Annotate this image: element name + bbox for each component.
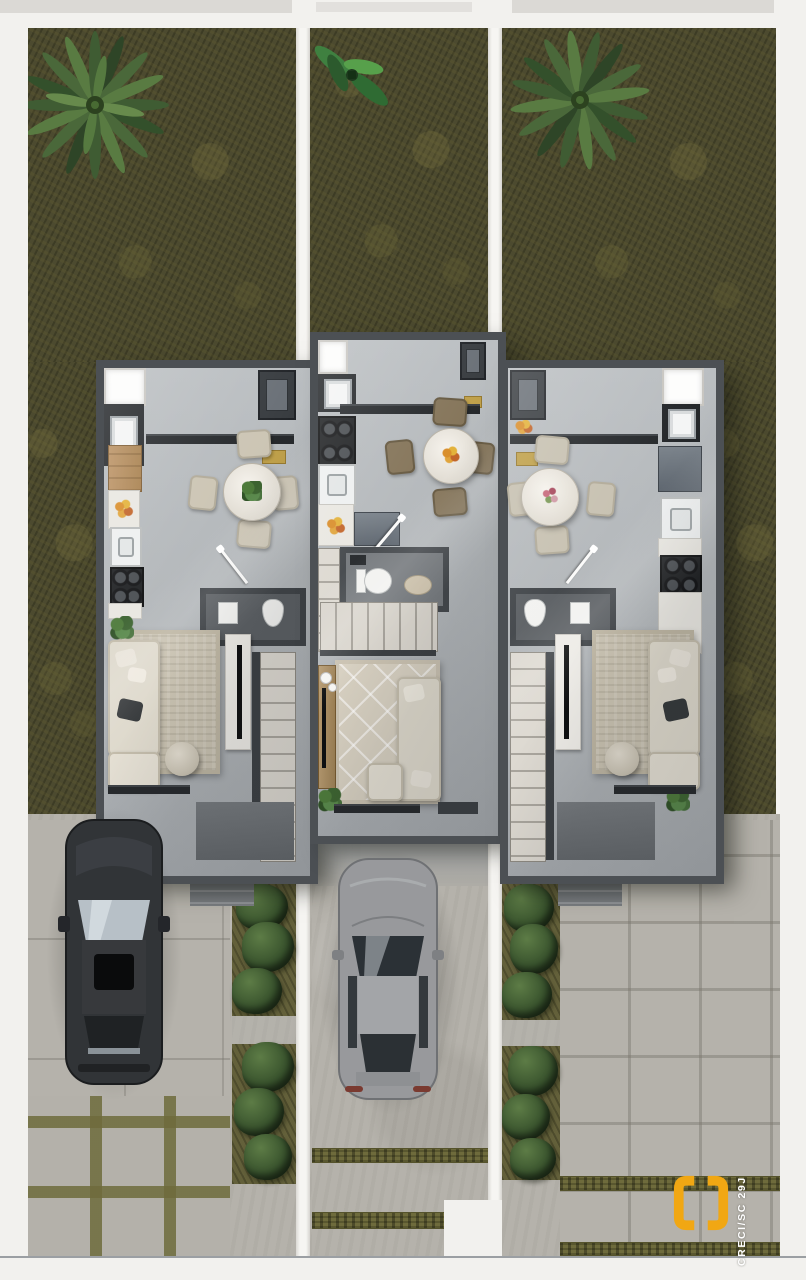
sliding-door bbox=[334, 806, 420, 813]
water-heater bbox=[324, 379, 352, 409]
right-margin bbox=[780, 28, 806, 1262]
dining-chair bbox=[432, 487, 468, 518]
dark-pillow bbox=[662, 698, 690, 723]
staircase bbox=[510, 652, 546, 862]
bush bbox=[502, 1094, 550, 1140]
sofa bbox=[108, 640, 160, 756]
fruit-bowl bbox=[514, 420, 534, 434]
unit-center bbox=[310, 332, 506, 844]
kitchen-bar-counter bbox=[146, 436, 294, 444]
bathroom-sink bbox=[404, 575, 432, 595]
tv-console bbox=[225, 634, 251, 750]
electrical-panel bbox=[460, 342, 486, 380]
dark-pillow bbox=[116, 698, 144, 723]
skylight bbox=[104, 368, 146, 406]
paver-crossing bbox=[232, 1016, 296, 1044]
skylight bbox=[662, 368, 704, 406]
cooktop bbox=[318, 416, 356, 466]
dining-chair bbox=[534, 525, 570, 555]
bush bbox=[232, 968, 282, 1014]
flower-centerpiece bbox=[538, 484, 562, 508]
tv-screen bbox=[237, 645, 242, 739]
left-margin bbox=[0, 28, 28, 1262]
water-heater bbox=[668, 409, 696, 439]
unit-right bbox=[500, 360, 724, 884]
brand-bracket-logo bbox=[672, 1174, 730, 1232]
paver-crossing bbox=[502, 1020, 560, 1046]
dining-chair bbox=[586, 481, 617, 517]
sofa-chaise bbox=[108, 752, 160, 790]
table-centerpiece bbox=[441, 445, 461, 465]
kitchen-sink bbox=[660, 497, 702, 542]
bush bbox=[510, 924, 558, 974]
dining-chair bbox=[534, 435, 570, 466]
cooktop bbox=[660, 555, 702, 596]
cooktop bbox=[110, 567, 144, 607]
threshold-step bbox=[438, 802, 478, 814]
toilet bbox=[524, 599, 546, 627]
pillow bbox=[668, 648, 691, 668]
entry-landing bbox=[557, 802, 655, 860]
paver-grid-left bbox=[28, 1096, 230, 1256]
bush bbox=[242, 922, 294, 972]
top-curb-left bbox=[0, 0, 292, 13]
staircase bbox=[320, 602, 438, 652]
tv-screen bbox=[322, 688, 326, 768]
hedge-right bbox=[502, 884, 560, 1180]
dining-chair bbox=[432, 397, 468, 427]
pillow bbox=[127, 667, 147, 684]
electrical-panel bbox=[510, 370, 546, 420]
door-swing bbox=[566, 548, 595, 585]
dining-chair bbox=[236, 519, 272, 550]
toilet bbox=[364, 568, 392, 594]
fruit-bowl bbox=[113, 497, 135, 521]
curb-cutout bbox=[444, 1200, 502, 1258]
top-curb-right bbox=[512, 0, 774, 13]
kitchen-sink bbox=[318, 464, 356, 506]
dining-table bbox=[423, 428, 479, 484]
hedge-left bbox=[232, 884, 296, 1184]
kitchen-counter bbox=[318, 504, 354, 546]
suv-car-dark bbox=[58, 814, 170, 1092]
entry-landing bbox=[196, 802, 294, 860]
floor-lamp bbox=[328, 683, 337, 692]
floor-plan-render: CRECI/SC 29J bbox=[0, 0, 806, 1280]
watermark: CRECI/SC 29J bbox=[660, 1148, 780, 1270]
bush bbox=[502, 972, 552, 1018]
tv-screen bbox=[564, 645, 569, 739]
sofa bbox=[397, 677, 441, 801]
sofa-chaise bbox=[367, 763, 403, 801]
dining-chair bbox=[236, 429, 272, 459]
sliding-door bbox=[614, 787, 696, 794]
dining-table bbox=[521, 468, 579, 526]
bathroom-sink bbox=[570, 602, 590, 624]
sofa-chaise bbox=[648, 752, 700, 790]
bathroom-sink bbox=[218, 602, 238, 624]
dining-table bbox=[223, 463, 281, 521]
bathroom-shelf bbox=[350, 555, 366, 565]
kitchen-sink bbox=[110, 527, 142, 567]
bush bbox=[234, 1088, 284, 1136]
tv-console bbox=[555, 634, 581, 750]
bush bbox=[244, 1134, 292, 1180]
grass-joint-center-1 bbox=[312, 1148, 488, 1163]
kitchen-bar-counter bbox=[510, 436, 658, 444]
bush bbox=[242, 1042, 294, 1092]
sliding-door bbox=[108, 787, 190, 794]
table-centerpiece bbox=[242, 481, 262, 501]
floor-lamp bbox=[320, 672, 332, 684]
palm-tree-right bbox=[505, 22, 655, 172]
stair-wall bbox=[546, 652, 554, 860]
wood-cabinet bbox=[108, 445, 142, 492]
fruit-bowl bbox=[325, 515, 347, 537]
dining-chair bbox=[384, 439, 415, 476]
potted-plant bbox=[110, 616, 134, 640]
toilet bbox=[262, 599, 284, 627]
tropical-plant-center bbox=[307, 30, 397, 120]
pouf bbox=[165, 742, 199, 776]
electrical-panel bbox=[258, 370, 296, 420]
pillow bbox=[657, 667, 677, 684]
pillow bbox=[410, 769, 432, 788]
bush bbox=[510, 1138, 556, 1180]
utility-niche bbox=[662, 404, 700, 442]
kitchen-counter bbox=[108, 490, 140, 529]
top-curb-center bbox=[316, 2, 472, 12]
bush bbox=[508, 1046, 558, 1096]
refrigerator bbox=[658, 446, 702, 492]
garden-left-strip bbox=[28, 362, 96, 814]
door-swing bbox=[219, 548, 248, 585]
skylight bbox=[318, 340, 348, 374]
pillow bbox=[403, 683, 426, 703]
license-text: CRECI/SC 29J bbox=[736, 1152, 748, 1266]
dining-chair bbox=[187, 475, 218, 512]
sofa bbox=[648, 640, 700, 756]
stair-wall bbox=[320, 650, 436, 656]
sedan-car-silver bbox=[330, 856, 446, 1104]
pillow bbox=[114, 648, 137, 668]
pouf bbox=[605, 742, 639, 776]
palm-tree-left bbox=[20, 30, 170, 180]
